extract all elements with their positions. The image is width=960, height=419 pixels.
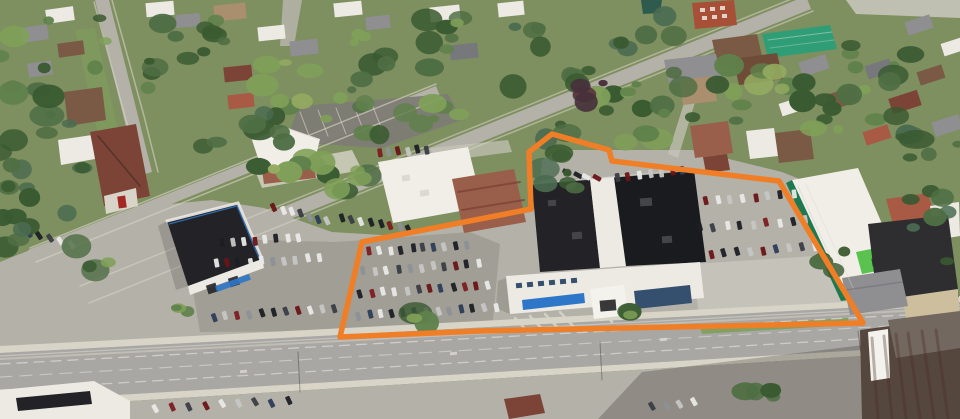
tree-canopy [669, 76, 698, 97]
tree-canopy [270, 94, 289, 108]
tree-canopy [570, 79, 590, 94]
building-detail [662, 236, 672, 244]
tree-canopy [350, 71, 372, 87]
parked-car [378, 219, 385, 229]
house-roof [333, 1, 362, 18]
tree-canopy [632, 100, 653, 117]
tree-canopy [93, 14, 107, 22]
tree-canopy [509, 23, 522, 31]
parked-car [357, 217, 365, 227]
building-detail [640, 198, 653, 207]
building-detail [549, 280, 555, 286]
tree-canopy [449, 109, 469, 121]
complex-black-roof-b [614, 170, 706, 266]
tree-canopy [0, 50, 9, 63]
tree-canopy [141, 82, 156, 94]
tree-canopy [253, 56, 281, 74]
tree-canopy [377, 56, 395, 71]
tree-canopy [246, 74, 278, 97]
tree-canopy [217, 37, 230, 45]
tree-canopy [415, 58, 444, 76]
parked-car [385, 147, 391, 157]
tree-canopy [197, 47, 210, 56]
building-detail [712, 15, 717, 19]
parked-car [367, 217, 374, 227]
tree-canopy [99, 37, 112, 45]
street-stub [280, 0, 302, 46]
tree-canopy [357, 32, 371, 42]
house-roof [904, 14, 933, 35]
house-roof [175, 13, 200, 28]
tree-canopy [144, 58, 155, 65]
tree-canopy [0, 129, 28, 151]
tree-canopy [907, 223, 920, 232]
tree-canopy [43, 16, 54, 24]
tree-canopy [563, 169, 572, 177]
tree-canopy [269, 125, 290, 140]
tree-canopy [57, 205, 76, 222]
tree-canopy [0, 81, 28, 105]
tree-canopy [355, 95, 374, 111]
tree-canopy [566, 182, 585, 193]
tree-canopy [149, 14, 177, 33]
tree-canopy [635, 25, 657, 44]
tree-canopy [631, 81, 641, 87]
tree-canopy [623, 310, 637, 319]
tree-canopy [333, 92, 347, 104]
tree-canopy [246, 158, 271, 175]
tree-canopy [729, 117, 744, 125]
tree-canopy [370, 125, 390, 144]
tree-canopy [838, 247, 850, 257]
tree-canopy [833, 125, 843, 134]
building-detail [560, 279, 566, 285]
tree-canopy [101, 257, 116, 267]
tree-canopy [899, 130, 935, 149]
house-roof [289, 39, 318, 57]
parked-car [347, 215, 355, 225]
house-roof [449, 43, 478, 61]
house-roof [862, 124, 891, 145]
building-detail [548, 200, 556, 207]
tree-canopy [613, 37, 629, 49]
tree-canopy [320, 115, 332, 123]
aerial-photo [0, 0, 960, 419]
tree-canopy [575, 92, 598, 112]
building-detail [516, 283, 522, 289]
parked-car [397, 222, 404, 232]
tree-canopy [419, 94, 447, 113]
house-roof [916, 64, 945, 85]
parked-car [386, 221, 393, 231]
tree-canopy [903, 153, 918, 161]
tree-canopy [931, 189, 954, 207]
tree-canopy [731, 382, 759, 400]
tree-canopy [685, 112, 700, 122]
tree-canopy [324, 178, 350, 199]
tree-canopy [760, 383, 781, 398]
tree-canopy [13, 222, 32, 237]
house-roof [257, 25, 285, 42]
tree-canopy [177, 52, 200, 65]
tree-canopy [239, 115, 267, 134]
tree-canopy [407, 314, 423, 323]
tree-canopy [0, 26, 29, 47]
tree-canopy [661, 26, 687, 46]
tree-canopy [297, 63, 324, 78]
building-detail [702, 16, 707, 20]
building-detail [117, 196, 127, 209]
tree-canopy [897, 46, 924, 63]
tree-canopy [350, 38, 360, 46]
white-gable-house [746, 128, 778, 159]
tree-canopy [393, 103, 417, 122]
tree-canopy [878, 72, 901, 91]
tree-canopy [732, 99, 752, 110]
building-detail [720, 6, 725, 10]
tree-canopy [653, 6, 676, 26]
tree-canopy [923, 208, 946, 226]
tree-canopy [800, 120, 827, 136]
complex-black-roof-a [532, 179, 600, 272]
tree-canopy [171, 304, 182, 311]
brick-house-mid [690, 121, 733, 158]
tree-canopy [416, 31, 443, 54]
parked-car [395, 146, 402, 156]
tree-canopy [291, 93, 312, 109]
parked-car [306, 213, 314, 223]
tree-canopy [775, 83, 790, 94]
tree-canopy [658, 109, 670, 118]
tree-canopy [706, 76, 729, 94]
tree-canopy [883, 107, 909, 125]
aerial-screenshot [0, 0, 960, 419]
tree-canopy [268, 164, 280, 174]
tree-canopy [445, 33, 459, 42]
tree-canopy [940, 257, 954, 265]
tree-canopy [19, 188, 40, 207]
generated-scene [0, 0, 960, 419]
tree-canopy [865, 113, 886, 125]
tree-canopy [168, 31, 184, 42]
tree-canopy [62, 119, 77, 128]
tree-canopy [350, 165, 364, 175]
building-detail [700, 8, 705, 12]
tree-canopy [789, 89, 816, 112]
tree-canopy [36, 127, 58, 139]
tree-canopy [902, 194, 920, 205]
parked-car [377, 148, 383, 157]
building-detail [572, 232, 582, 240]
tree-canopy [822, 101, 841, 116]
building-detail [710, 7, 715, 11]
tree-canopy [3, 158, 21, 173]
tree-canopy [952, 141, 960, 148]
tree-canopy [763, 64, 787, 80]
parked-car [339, 213, 346, 223]
tree-canopy [347, 86, 356, 93]
house-roof [365, 15, 390, 30]
tree-canopy [841, 40, 860, 51]
tree-canopy [614, 134, 638, 151]
house-roof [227, 93, 254, 110]
tree-canopy [450, 18, 463, 27]
tree-canopy [531, 23, 546, 34]
building-detail [571, 278, 577, 284]
tree-canopy [62, 234, 92, 258]
tree-canopy [1, 181, 16, 192]
tree-canopy [276, 161, 303, 183]
tree-canopy [848, 61, 864, 73]
tree-canopy [207, 137, 227, 148]
tree-canopy [196, 21, 214, 34]
building-detail [420, 189, 430, 196]
tree-canopy [82, 261, 96, 273]
tree-canopy [792, 73, 816, 91]
tree-canopy [32, 85, 64, 109]
building-detail [600, 299, 617, 311]
tree-canopy [38, 63, 51, 74]
tree-canopy [921, 147, 937, 161]
tree-canopy [714, 54, 744, 77]
house-roof [931, 114, 960, 137]
tree-canopy [87, 60, 102, 74]
parked-car [414, 144, 421, 154]
red-brick-apartment [692, 0, 737, 29]
tree-canopy [836, 84, 862, 106]
street-top-right-corner [846, 0, 960, 18]
building-detail [402, 174, 411, 181]
building-detail [722, 14, 727, 18]
tree-canopy [439, 44, 454, 54]
tree-canopy [279, 59, 292, 66]
parked-car [314, 215, 322, 225]
tree-canopy [598, 80, 607, 87]
parked-car [323, 216, 331, 226]
tree-canopy [599, 105, 614, 115]
building-detail [527, 282, 533, 288]
building-detail [538, 281, 544, 287]
house-roof [941, 37, 960, 57]
house-roof [497, 1, 524, 18]
tree-canopy [530, 37, 551, 57]
church-annex [58, 135, 95, 165]
tree-canopy [500, 74, 527, 99]
tree-canopy [309, 150, 336, 174]
tree-canopy [75, 162, 90, 173]
tree-canopy [620, 87, 636, 96]
